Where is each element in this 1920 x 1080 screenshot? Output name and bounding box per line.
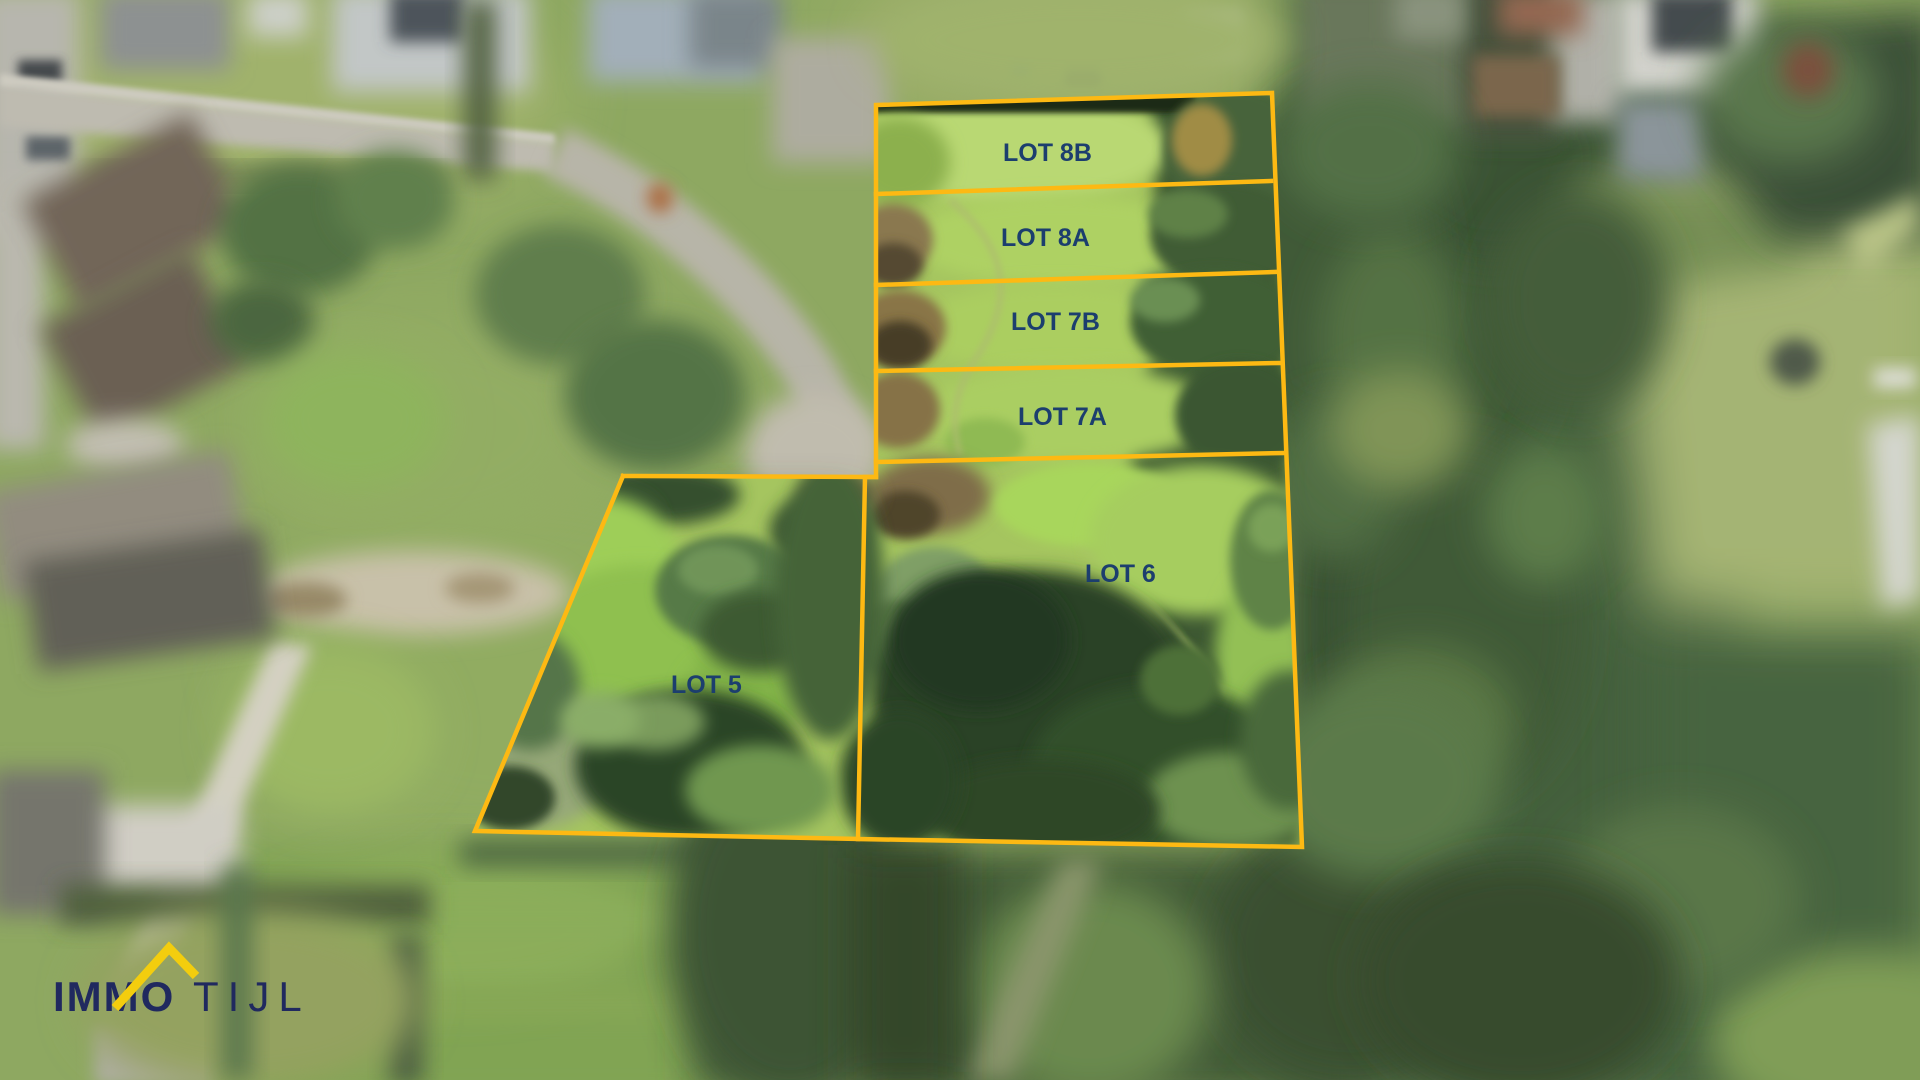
svg-text:LOT 7A: LOT 7A [1018, 403, 1107, 431]
svg-text:LOT 8B: LOT 8B [1003, 139, 1092, 167]
svg-text:IMMO: IMMO [53, 973, 175, 1020]
svg-text:LOT 6: LOT 6 [1085, 560, 1156, 588]
svg-text:LOT 5: LOT 5 [671, 671, 742, 699]
svg-text:LOT 8A: LOT 8A [1001, 224, 1090, 252]
svg-text:LOT 7B: LOT 7B [1011, 308, 1100, 336]
svg-text:TIJL: TIJL [193, 973, 311, 1020]
